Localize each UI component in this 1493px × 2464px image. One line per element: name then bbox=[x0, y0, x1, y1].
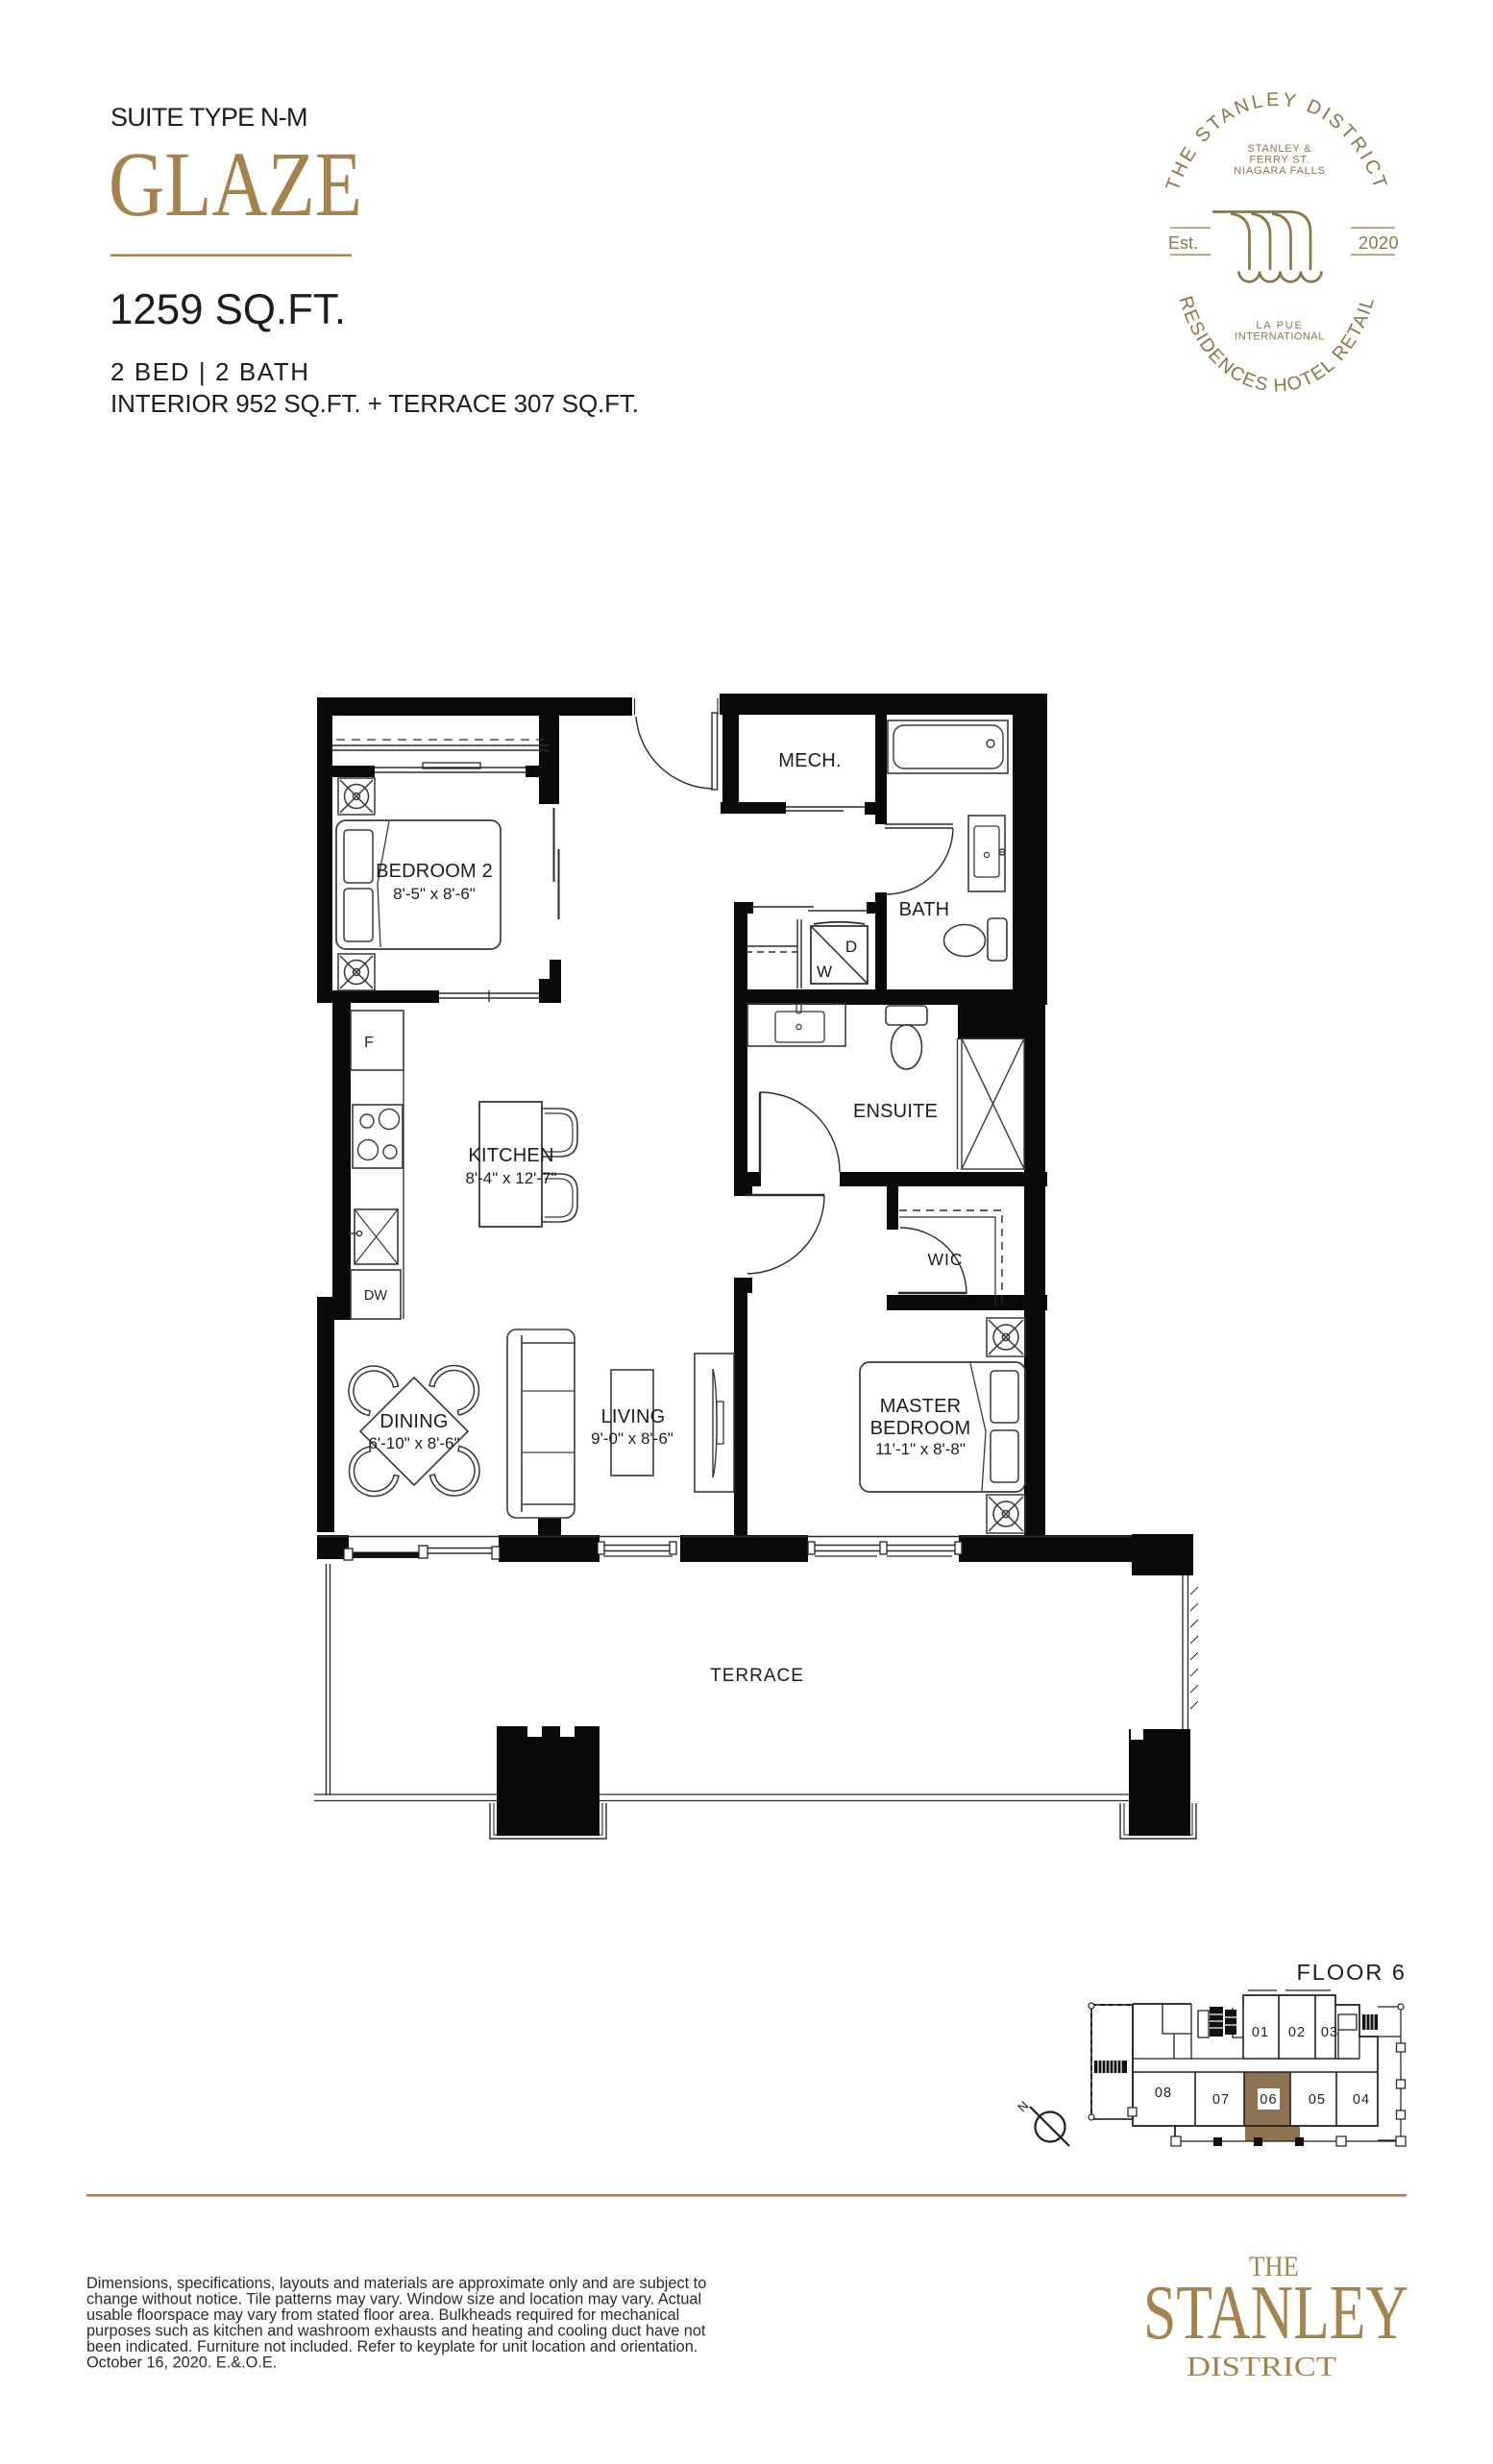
svg-text:6'-10" x 8'-6": 6'-10" x 8'-6" bbox=[368, 1434, 459, 1452]
svg-text:INTERNATIONAL: INTERNATIONAL bbox=[1235, 331, 1325, 343]
svg-text:DW: DW bbox=[364, 1288, 387, 1304]
svg-text:LA PUE: LA PUE bbox=[1256, 320, 1303, 331]
svg-text:KITCHEN: KITCHEN bbox=[468, 1145, 553, 1166]
svg-text:07: 07 bbox=[1212, 2092, 1230, 2108]
svg-text:LIVING: LIVING bbox=[601, 1406, 666, 1427]
svg-text:WIC: WIC bbox=[927, 1250, 963, 1269]
svg-text:11'-1" x 8'-8": 11'-1" x 8'-8" bbox=[875, 1440, 966, 1458]
svg-text:BEDROOM: BEDROOM bbox=[870, 1418, 971, 1439]
svg-text:Est.: Est. bbox=[1168, 233, 1198, 253]
svg-text:been indicated. Furniture not: been indicated. Furniture not included. … bbox=[86, 2338, 698, 2355]
svg-text:D: D bbox=[845, 938, 857, 956]
svg-text:TERRACE: TERRACE bbox=[710, 1666, 804, 1686]
svg-text:FERRY ST.: FERRY ST. bbox=[1249, 155, 1309, 166]
svg-text:08: 08 bbox=[1155, 2086, 1172, 2101]
svg-text:8'-4" x 12'-7": 8'-4" x 12'-7" bbox=[465, 1169, 556, 1187]
svg-text:INTERIOR 952 SQ.FT. + TERRACE: INTERIOR 952 SQ.FT. + TERRACE 307 SQ.FT. bbox=[110, 389, 639, 418]
svg-text:THE STANLEY DISTRICT: THE STANLEY DISTRICT bbox=[1163, 89, 1392, 194]
svg-text:GLAZE: GLAZE bbox=[109, 133, 362, 235]
svg-text:8'-5" x 8'-6": 8'-5" x 8'-6" bbox=[393, 885, 476, 903]
svg-text:DINING: DINING bbox=[379, 1411, 448, 1432]
svg-text:Dimensions, specifications, la: Dimensions, specifications, layouts and … bbox=[86, 2275, 706, 2292]
svg-text:MASTER: MASTER bbox=[880, 1396, 962, 1417]
svg-text:RESIDENCES HOTEL RETAIL: RESIDENCES HOTEL RETAIL bbox=[1175, 294, 1380, 397]
svg-text:change without notice. Tile pa: change without notice. Tile patterns may… bbox=[86, 2291, 701, 2308]
svg-text:NIAGARA FALLS: NIAGARA FALLS bbox=[1234, 165, 1325, 177]
svg-text:ENSUITE: ENSUITE bbox=[853, 1101, 938, 1122]
svg-text:BATH: BATH bbox=[899, 899, 950, 920]
svg-text:W: W bbox=[817, 963, 832, 981]
svg-text:05: 05 bbox=[1309, 2092, 1326, 2108]
svg-text:04: 04 bbox=[1353, 2092, 1370, 2108]
svg-text:October 16, 2020. E.&.O.E.: October 16, 2020. E.&.O.E. bbox=[86, 2354, 277, 2372]
svg-text:usable floorspace may vary fro: usable floorspace may vary from stated f… bbox=[86, 2306, 679, 2324]
svg-text:purposes such as kitchen and w: purposes such as kitchen and washroom ex… bbox=[86, 2323, 706, 2340]
svg-text:N: N bbox=[1015, 2098, 1031, 2114]
svg-text:FLOOR 6: FLOOR 6 bbox=[1296, 1960, 1407, 1985]
svg-text:DISTRICT: DISTRICT bbox=[1187, 2352, 1336, 2382]
svg-text:MECH.: MECH. bbox=[778, 750, 841, 771]
svg-text:STANLEY &: STANLEY & bbox=[1248, 143, 1312, 155]
svg-text:03: 03 bbox=[1321, 2025, 1338, 2040]
svg-text:SUITE TYPE N-M: SUITE TYPE N-M bbox=[110, 103, 308, 132]
svg-text:F: F bbox=[364, 1035, 374, 1051]
svg-text:2 BED | 2 BATH: 2 BED | 2 BATH bbox=[110, 357, 308, 386]
svg-text:2020: 2020 bbox=[1358, 233, 1399, 253]
svg-text:BEDROOM 2: BEDROOM 2 bbox=[376, 861, 493, 882]
svg-text:9'-0" x 8'-6": 9'-0" x 8'-6" bbox=[591, 1429, 673, 1448]
svg-text:STANLEY: STANLEY bbox=[1143, 2271, 1408, 2355]
svg-text:1259 SQ.FT.: 1259 SQ.FT. bbox=[110, 286, 346, 333]
svg-text:06: 06 bbox=[1260, 2092, 1277, 2108]
svg-text:02: 02 bbox=[1288, 2025, 1306, 2040]
svg-text:01: 01 bbox=[1252, 2025, 1269, 2040]
